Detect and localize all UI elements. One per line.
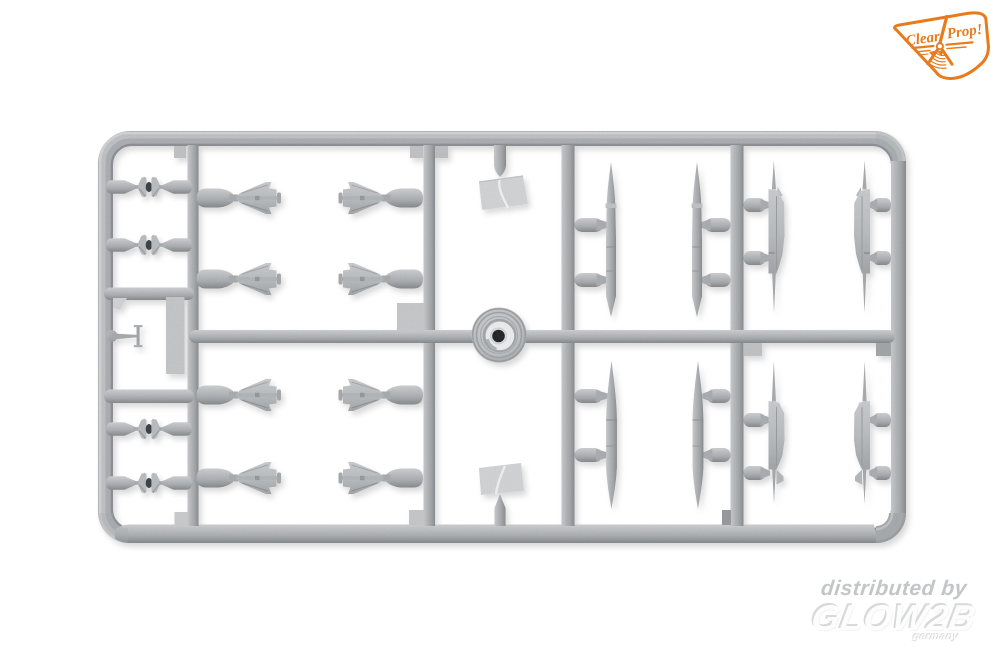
svg-text:Clear: Clear (905, 29, 941, 50)
svg-text:Prop!: Prop! (946, 22, 984, 43)
